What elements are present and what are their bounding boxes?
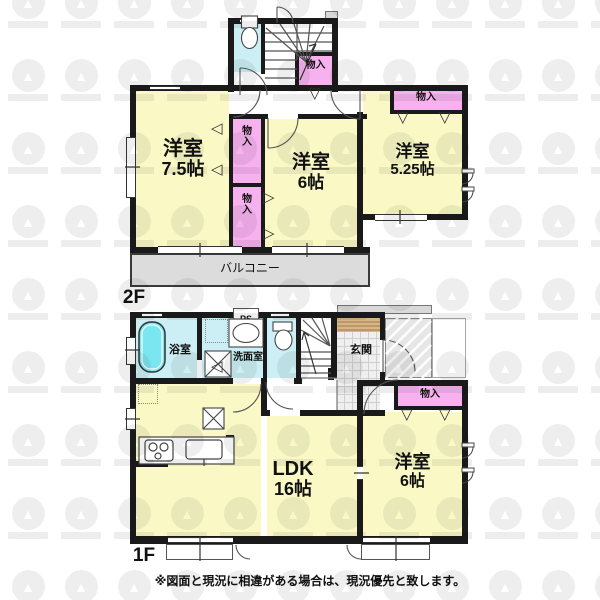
watermark-mountain-icon: ▲	[65, 278, 98, 311]
closet-label-2f-525: 物入	[394, 92, 458, 103]
wall-segment	[298, 114, 367, 119]
watermark-text-bar	[273, 94, 313, 101]
window[interactable]	[240, 19, 256, 23]
watermark-logo-icon: ▲	[8, 132, 48, 174]
watermark-logo-icon: ▲	[8, 205, 48, 247]
watermark-text-bar	[8, 532, 48, 539]
watermark-mountain-icon: ▲	[65, 497, 98, 530]
pipe-space-label: PS	[240, 314, 252, 324]
floor-label-1f: 1F	[122, 546, 166, 567]
watermark-text-bar	[8, 21, 48, 28]
room-label-ldk-type: LDK	[248, 458, 338, 480]
watermark-mountain-icon: ▲	[65, 132, 98, 165]
watermark-text-bar	[8, 94, 48, 101]
watermark-mountain-icon: ▲	[489, 497, 522, 530]
watermark-text-bar	[591, 386, 600, 393]
watermark-text-bar	[432, 21, 472, 28]
balcony-label: バルコニー	[134, 262, 366, 275]
room-label-bedroom6-1f-size: 6帖	[366, 473, 459, 491]
watermark-logo-icon: ▲	[591, 0, 600, 28]
wall-segment	[380, 372, 385, 380]
watermark-logo-icon: ▲	[591, 132, 600, 174]
watermark-logo-icon: ▲	[167, 0, 207, 28]
watermark-mountain-icon: ▲	[595, 59, 600, 92]
wall-segment	[296, 318, 301, 378]
room-label-entrance: 玄関	[339, 344, 383, 356]
watermark-logo-icon: ▲	[61, 205, 101, 247]
watermark-mountain-icon: ▲	[65, 424, 98, 457]
closet-label-1f: 物入	[398, 389, 462, 400]
window[interactable]	[126, 137, 136, 198]
watermark-mountain-icon: ▲	[12, 132, 45, 165]
watermark-mountain-icon: ▲	[489, 424, 522, 457]
watermark-logo-icon: ▲	[485, 132, 525, 174]
watermark-text-bar	[538, 21, 578, 28]
closet-door-down-icon: ▽	[439, 407, 451, 422]
watermark-text-bar	[61, 240, 101, 247]
watermark-text-bar	[167, 21, 207, 28]
closet-door-right-icon: ▷	[263, 190, 275, 205]
watermark-logo-icon: ▲	[485, 59, 525, 101]
watermark-mountain-icon: ▲	[542, 351, 575, 384]
room-label-bedroom525-type: 洋室	[363, 143, 462, 162]
window[interactable]	[375, 214, 427, 221]
watermark-logo-icon: ▲	[485, 0, 525, 28]
watermark-mountain-icon: ▲	[12, 570, 45, 600]
disclaimer-note: ※図面と現況に相違がある場合は、現況優先と致します。	[50, 572, 570, 589]
watermark-logo-icon: ▲	[485, 424, 525, 466]
room-toilet-2f	[234, 24, 261, 72]
watermark-text-bar	[8, 313, 48, 320]
watermark-mountain-icon: ▲	[542, 205, 575, 238]
watermark-text-bar	[61, 313, 101, 320]
wall-segment	[357, 380, 468, 386]
watermark-mountain-icon: ▲	[542, 132, 575, 165]
wall-segment	[300, 410, 385, 416]
watermark-text-bar	[591, 240, 600, 247]
washer-pan-dotted	[205, 319, 228, 343]
watermark-mountain-icon: ▲	[12, 205, 45, 238]
watermark-text-bar	[538, 94, 578, 101]
watermark-logo-icon: ▲	[538, 132, 578, 174]
watermark-text-bar	[591, 313, 600, 320]
watermark-mountain-icon: ▲	[65, 205, 98, 238]
bay-window-box-ldk	[166, 544, 233, 560]
watermark-logo-icon: ▲	[61, 132, 101, 174]
watermark-logo-icon: ▲	[485, 497, 525, 539]
watermark-text-bar	[538, 167, 578, 174]
watermark-mountain-icon: ▲	[65, 59, 98, 92]
closet-label-2f-lower: 物入	[240, 194, 254, 216]
wall-segment	[357, 112, 363, 253]
watermark-logo-icon: ▲	[8, 351, 48, 393]
watermark-mountain-icon: ▲	[595, 132, 600, 165]
watermark-mountain-icon: ▲	[489, 351, 522, 384]
watermark-text-bar	[485, 167, 525, 174]
watermark-logo-icon: ▲	[485, 278, 525, 320]
watermark-mountain-icon: ▲	[224, 0, 257, 19]
room-label-bedroom525-size: 5.25帖	[363, 162, 462, 179]
watermark-text-bar	[538, 459, 578, 466]
watermark-text-bar	[485, 386, 525, 393]
room-label-bedroom75-type: 洋室	[136, 138, 230, 160]
watermark-mountain-icon: ▲	[542, 0, 575, 19]
closet-door-right-icon: ▷	[263, 226, 275, 241]
watermark-text-bar	[538, 313, 578, 320]
watermark-text-bar	[485, 240, 525, 247]
window[interactable]	[272, 246, 344, 254]
watermark-text-bar	[8, 459, 48, 466]
watermark-text-bar	[379, 240, 419, 247]
wall-opening	[357, 466, 363, 480]
watermark-text-bar	[8, 240, 48, 247]
watermark-text-bar	[61, 459, 101, 466]
watermark-mountain-icon: ▲	[595, 205, 600, 238]
watermark-logo-icon: ▲	[538, 351, 578, 393]
approach-area	[432, 318, 466, 378]
watermark-text-bar	[591, 459, 600, 466]
watermark-mountain-icon: ▲	[489, 0, 522, 19]
watermark-mountain-icon: ▲	[542, 59, 575, 92]
watermark-mountain-icon: ▲	[65, 351, 98, 384]
room-label-bedroom6-1f-type: 洋室	[366, 453, 459, 473]
watermark-logo-icon: ▲	[538, 424, 578, 466]
watermark-logo-icon: ▲	[485, 205, 525, 247]
wall-segment	[332, 18, 338, 92]
window[interactable]	[168, 537, 233, 543]
watermark-text-bar	[485, 21, 525, 28]
room-label-bedroom6-2f-size: 6帖	[265, 174, 357, 193]
wall-segment	[380, 312, 385, 340]
watermark-logo-icon: ▲	[538, 0, 578, 28]
watermark-mountain-icon: ▲	[436, 0, 469, 19]
watermark-logo-icon: ▲	[591, 497, 600, 539]
window[interactable]	[363, 537, 430, 543]
watermark-logo-icon: ▲	[432, 278, 472, 320]
room-ldk-left	[136, 384, 261, 536]
watermark-logo-icon: ▲	[61, 0, 101, 28]
watermark-logo-icon: ▲	[538, 278, 578, 320]
wall-segment	[261, 24, 265, 74]
floor-plan-canvas: PS	[0, 0, 600, 600]
watermark-text-bar	[61, 21, 101, 28]
closet-door-down-icon: ▽	[397, 110, 409, 125]
closet-door-down-icon: ▽	[439, 110, 451, 125]
watermark-text-bar	[379, 21, 419, 28]
watermark-mountain-icon: ▲	[595, 278, 600, 311]
watermark-text-bar	[114, 21, 154, 28]
closet-label-2f-top: 物入	[299, 60, 332, 71]
closet-label-2f-upper: 物入	[240, 126, 254, 148]
watermark-text-bar	[8, 167, 48, 174]
watermark-mountain-icon: ▲	[595, 351, 600, 384]
room-toilet-1f	[267, 318, 296, 378]
watermark-logo-icon: ▲	[8, 0, 48, 28]
watermark-logo-icon: ▲	[485, 351, 525, 393]
watermark-logo-icon: ▲	[379, 0, 419, 28]
watermark-text-bar	[273, 386, 313, 393]
watermark-text-bar	[61, 167, 101, 174]
wall-segment	[357, 386, 363, 466]
pipe-space-box: PS	[233, 308, 259, 321]
closet-door-down-icon: ▽	[401, 407, 413, 422]
watermark-mountain-icon: ▲	[12, 59, 45, 92]
watermark-mountain-icon: ▲	[489, 132, 522, 165]
watermark-logo-icon: ▲	[8, 497, 48, 539]
watermark-text-bar	[8, 386, 48, 393]
watermark-text-bar	[432, 240, 472, 247]
watermark-text-bar	[538, 240, 578, 247]
watermark-logo-icon: ▲	[591, 351, 600, 393]
watermark-mountain-icon: ▲	[118, 0, 151, 19]
watermark-mountain-icon: ▲	[542, 497, 575, 530]
closet-door-left-icon: ◁	[211, 162, 223, 177]
closet-door-down-icon: ▽	[309, 86, 321, 101]
wall-segment	[294, 378, 302, 384]
watermark-mountain-icon: ▲	[12, 278, 45, 311]
window[interactable]	[158, 246, 242, 254]
window[interactable]	[150, 86, 180, 90]
watermark-text-bar	[61, 94, 101, 101]
watermark-text-bar	[591, 532, 600, 539]
wall-segment	[462, 85, 468, 220]
watermark-mountain-icon: ▲	[489, 205, 522, 238]
watermark-mountain-icon: ▲	[595, 497, 600, 530]
wall-segment	[462, 380, 468, 544]
entrance-step	[337, 318, 380, 332]
wall-segment	[130, 85, 468, 91]
watermark-mountain-icon: ▲	[489, 59, 522, 92]
window[interactable]	[142, 313, 162, 317]
wall-segment	[228, 18, 234, 92]
refrigerator-space-dotted	[138, 384, 158, 404]
porch	[385, 318, 432, 378]
window[interactable]	[126, 337, 136, 365]
watermark-logo-icon: ▲	[591, 278, 600, 320]
watermark-mountain-icon: ▲	[595, 0, 600, 19]
watermark-logo-icon: ▲	[61, 424, 101, 466]
kitchen-half-wall	[133, 461, 168, 467]
wall-segment	[295, 52, 332, 56]
watermark-logo-icon: ▲	[591, 205, 600, 247]
room-label-bedroom6-2f-type: 洋室	[265, 153, 357, 174]
watermark-logo-icon: ▲	[61, 497, 101, 539]
room-label-bath: 浴室	[158, 344, 202, 356]
wall-segment	[233, 183, 261, 187]
watermark-text-bar	[591, 167, 600, 174]
watermark-mountain-icon: ▲	[12, 424, 45, 457]
watermark-logo-icon: ▲	[114, 0, 154, 28]
watermark-logo-icon: ▲	[538, 59, 578, 101]
watermark-mountain-icon: ▲	[12, 0, 45, 19]
closet-door-left-icon: ◁	[211, 121, 223, 136]
watermark-text-bar	[61, 386, 101, 393]
watermark-logo-icon: ▲	[591, 424, 600, 466]
bath-door-icon: ◁	[211, 359, 223, 374]
window[interactable]	[271, 313, 289, 317]
watermark-mountain-icon: ▲	[542, 424, 575, 457]
watermark-logo-icon: ▲	[8, 59, 48, 101]
watermark-mountain-icon: ▲	[383, 0, 416, 19]
watermark-text-bar	[538, 386, 578, 393]
watermark-text-bar	[61, 532, 101, 539]
watermark-logo-icon: ▲	[8, 424, 48, 466]
watermark-mountain-icon: ▲	[436, 278, 469, 311]
room-label-ldk-size: 16帖	[248, 480, 338, 500]
watermark-text-bar	[591, 94, 600, 101]
room-label-washroom: 洗面室	[227, 352, 269, 363]
wall-segment	[263, 318, 267, 378]
watermark-text-bar	[326, 94, 366, 101]
watermark-mountain-icon: ▲	[12, 497, 45, 530]
kitchen-end-wall	[226, 435, 234, 463]
watermark-text-bar	[485, 532, 525, 539]
watermark-logo-icon: ▲	[538, 497, 578, 539]
bay-window-box-bedroom	[361, 544, 430, 560]
watermark-mountain-icon: ▲	[595, 570, 600, 600]
watermark-logo-icon: ▲	[61, 351, 101, 393]
watermark-logo-icon: ▲	[8, 570, 48, 600]
watermark-logo-icon: ▲	[432, 0, 472, 28]
watermark-text-bar	[485, 94, 525, 101]
watermark-mountain-icon: ▲	[65, 0, 98, 19]
watermark-logo-icon: ▲	[538, 205, 578, 247]
stair-handrail-post	[328, 368, 334, 380]
watermark-logo-icon: ▲	[8, 278, 48, 320]
floor-label-2f: 2F	[112, 288, 156, 309]
watermark-logo-icon: ▲	[591, 570, 600, 600]
watermark-text-bar	[485, 459, 525, 466]
watermark-logo-icon: ▲	[591, 59, 600, 101]
window[interactable]	[126, 408, 136, 430]
watermark-text-bar	[538, 532, 578, 539]
wall-segment	[261, 410, 270, 416]
watermark-text-bar	[591, 21, 600, 28]
wall-segment	[357, 480, 363, 536]
watermark-mountain-icon: ▲	[542, 278, 575, 311]
watermark-mountain-icon: ▲	[171, 0, 204, 19]
watermark-mountain-icon: ▲	[12, 351, 45, 384]
watermark-logo-icon: ▲	[61, 278, 101, 320]
watermark-mountain-icon: ▲	[277, 0, 310, 19]
watermark-mountain-icon: ▲	[595, 424, 600, 457]
watermark-text-bar	[485, 313, 525, 320]
watermark-logo-icon: ▲	[61, 59, 101, 101]
watermark-mountain-icon: ▲	[489, 278, 522, 311]
